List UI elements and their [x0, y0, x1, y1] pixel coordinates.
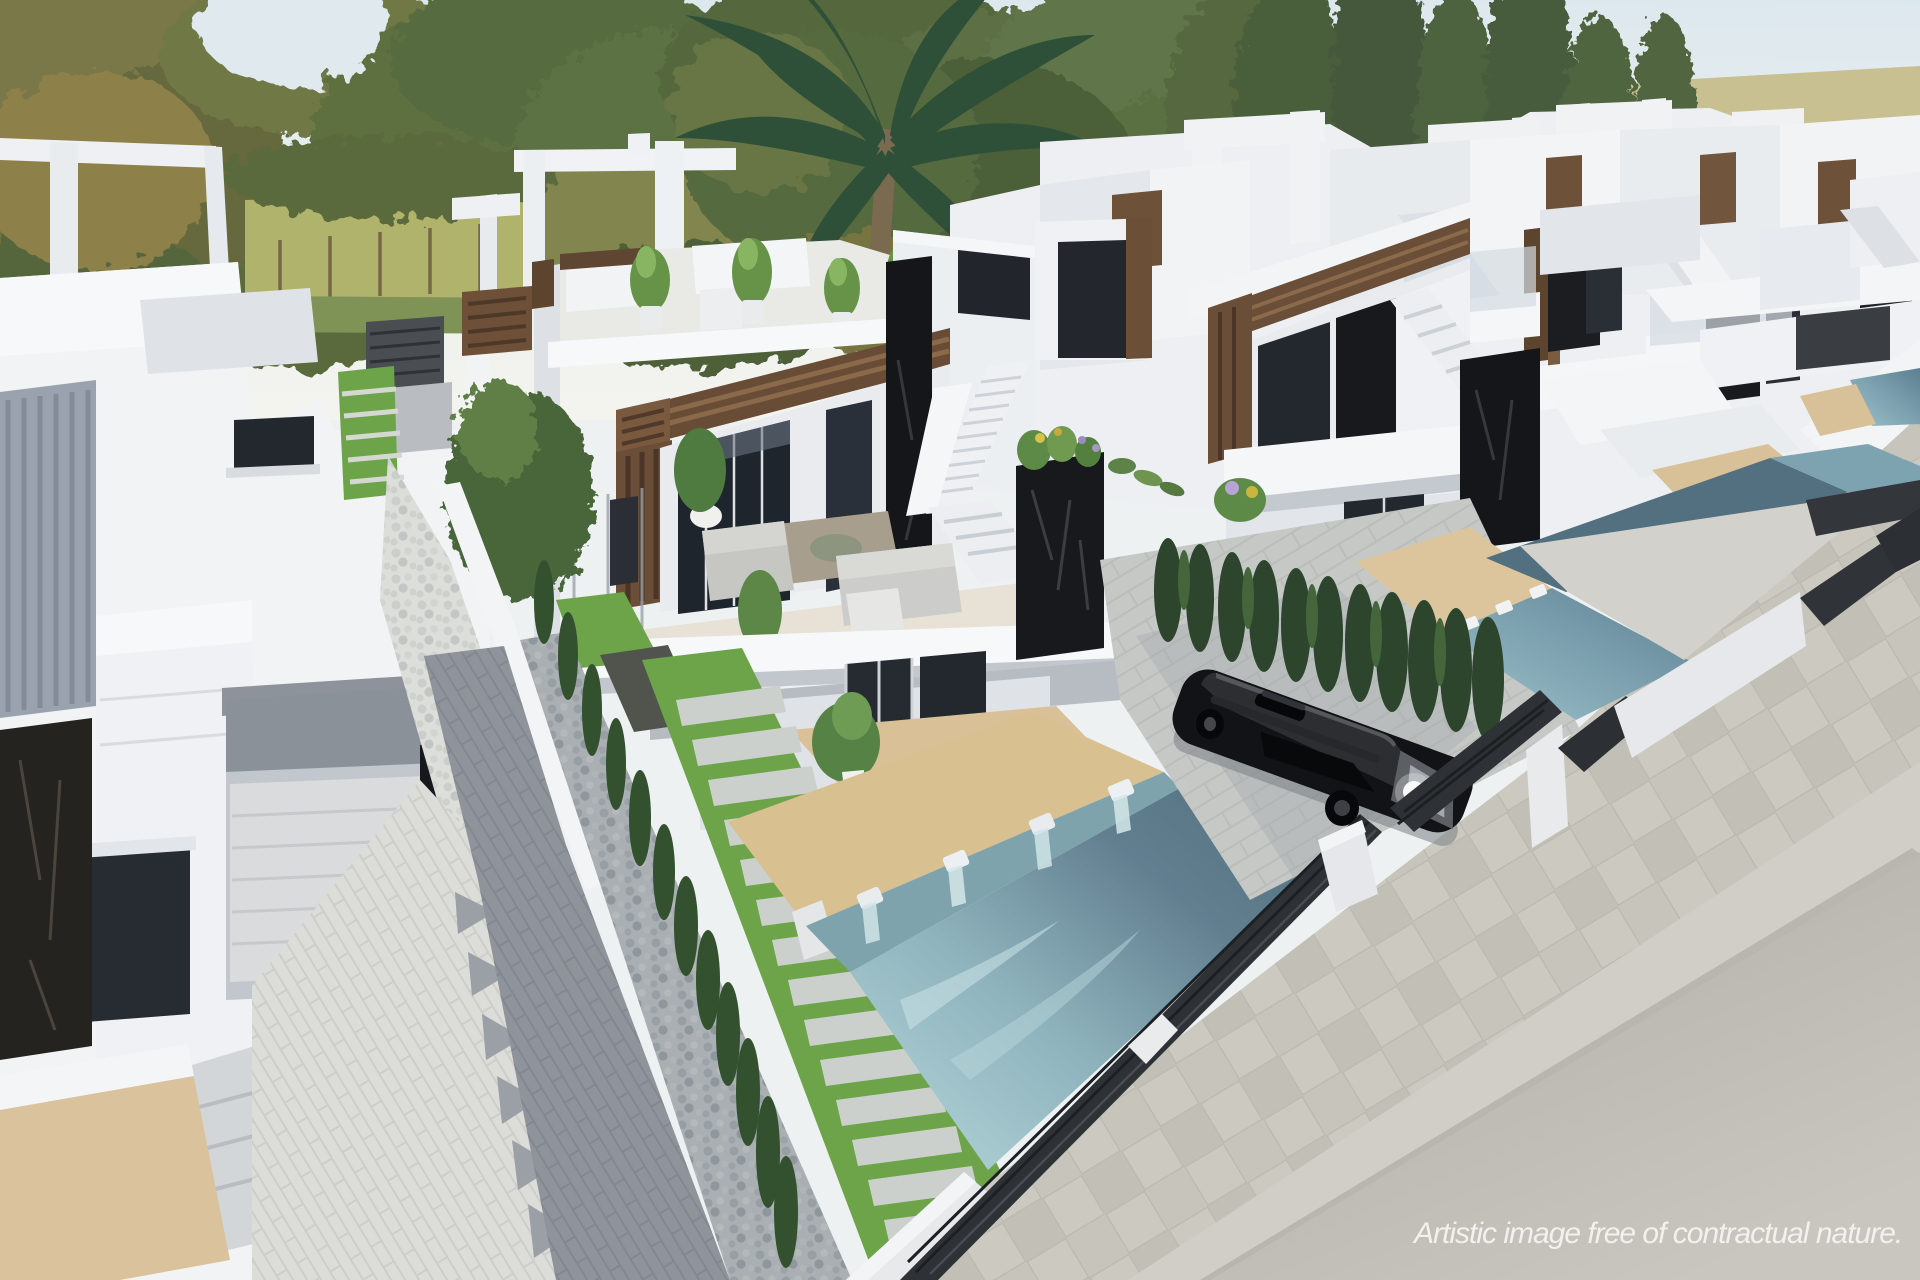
svg-text:Artistic image free of contrac: Artistic image free of contractual natur…: [1412, 1217, 1902, 1250]
